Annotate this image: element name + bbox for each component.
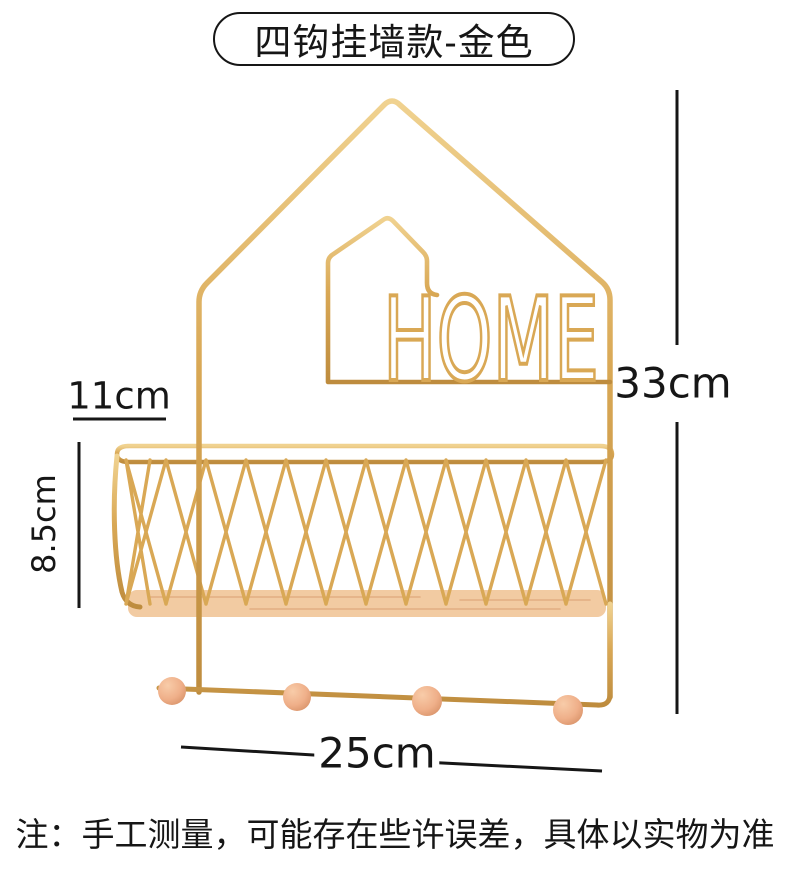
hook-bead <box>158 677 186 705</box>
home-sign-wire: HOME <box>383 273 599 408</box>
hook-rail <box>159 604 610 705</box>
label-top-width: 11cm <box>67 375 170 418</box>
label-basket-height: 8.5cm <box>25 474 63 574</box>
dim-line-bottom-width-left <box>181 747 330 756</box>
product-card: 四钩挂墙款-金色 HOME <box>0 0 790 882</box>
label-bottom-width: 25cm <box>314 729 439 778</box>
hook-bead <box>412 686 442 716</box>
dimension-lines <box>73 90 677 771</box>
label-total-height: 33cm <box>614 359 731 408</box>
measurement-note: 注：手工测量，可能存在些许误差，具体以实物为准 <box>0 808 790 856</box>
dim-line-bottom-width-right <box>423 762 602 771</box>
hook-bead <box>283 683 311 711</box>
hook-bead <box>553 695 583 725</box>
